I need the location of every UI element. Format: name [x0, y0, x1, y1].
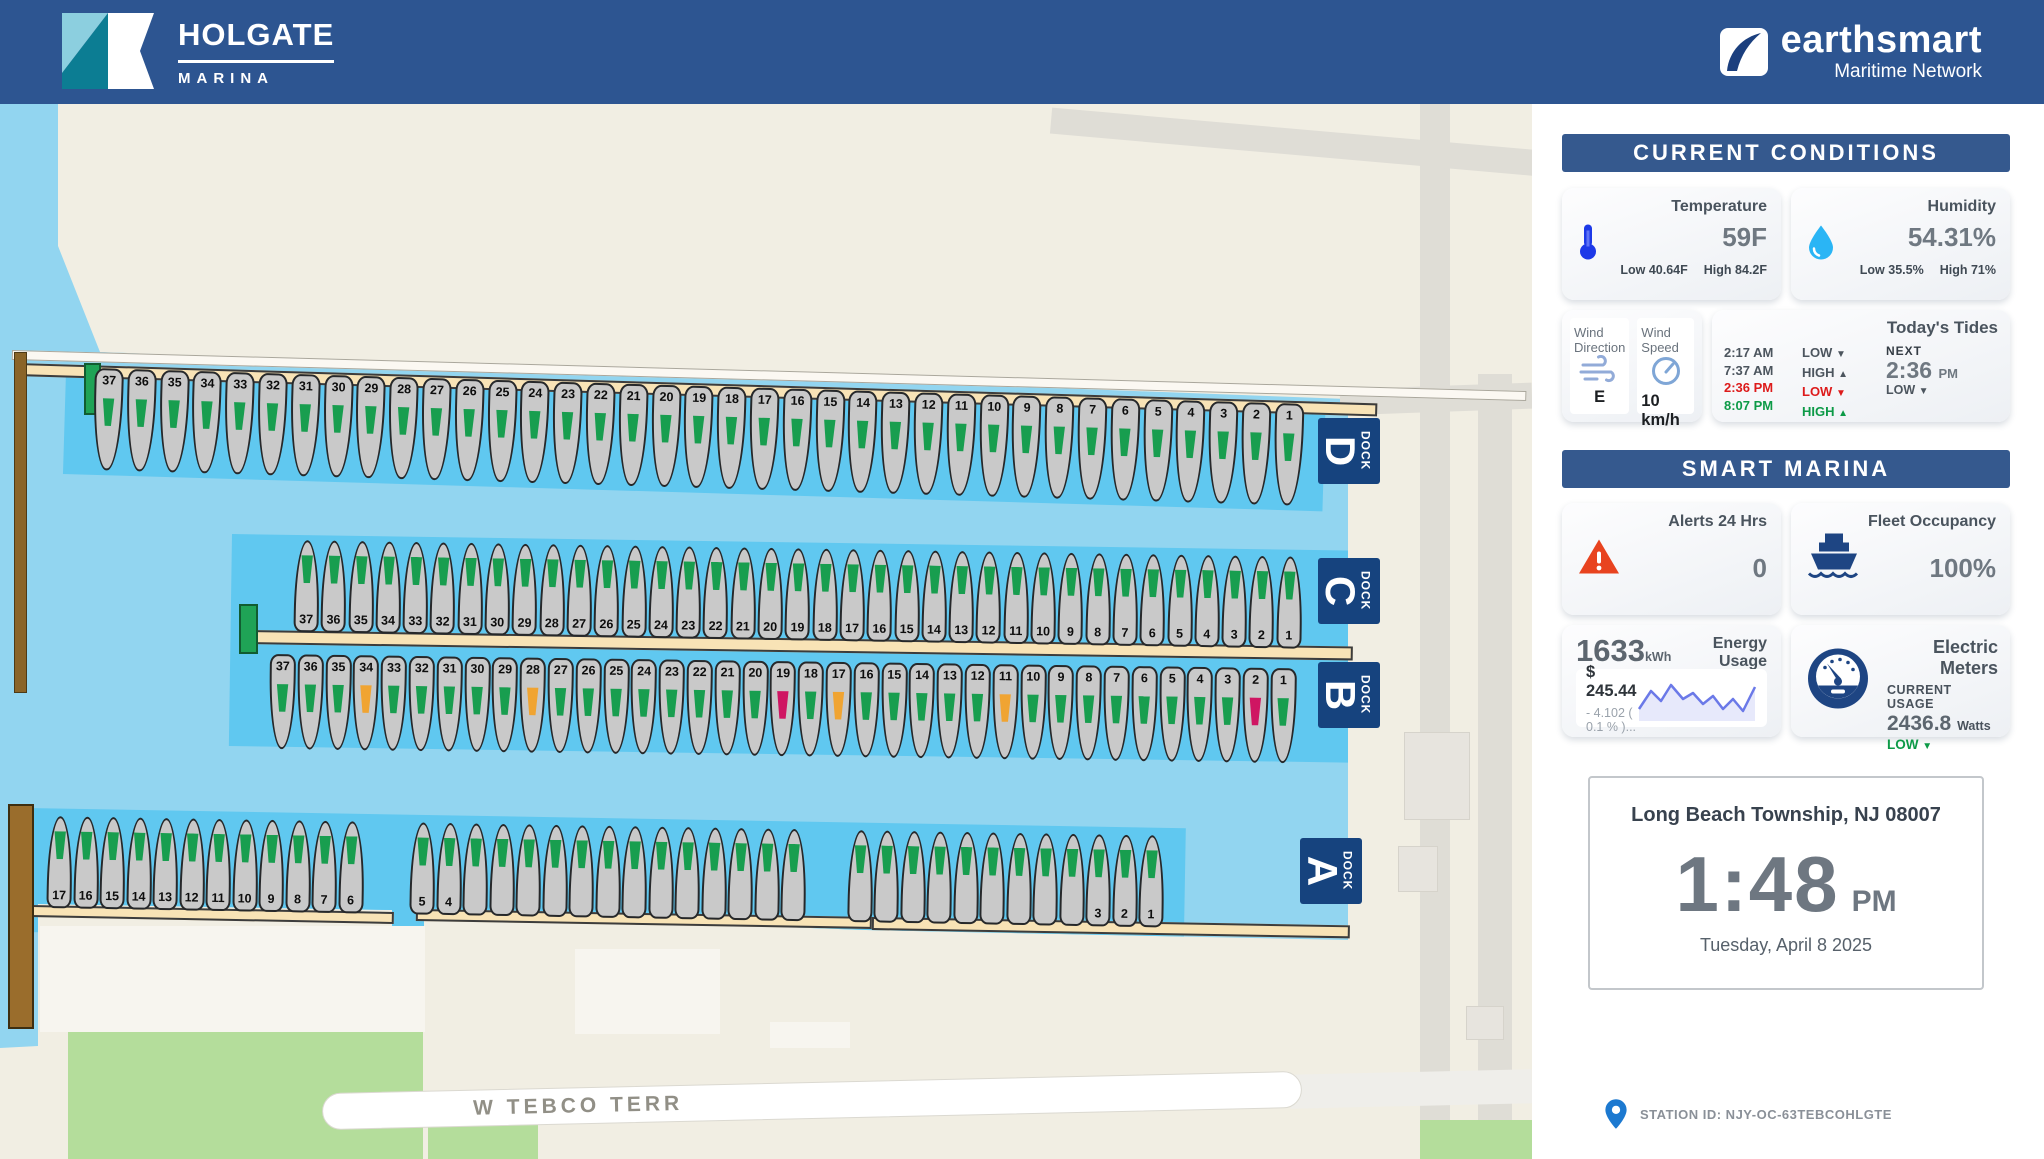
boat-slip-a[interactable]	[595, 826, 622, 918]
boat-slip-c12[interactable]: 12	[976, 551, 1003, 643]
slip-status-marker	[575, 840, 588, 868]
slip-status-marker	[443, 838, 456, 866]
boat-slip-b21[interactable]: 21	[713, 660, 740, 755]
boat-slip-c31[interactable]: 31	[457, 543, 484, 635]
slip-status-marker	[724, 416, 738, 444]
boat-slip-d27[interactable]: 27	[420, 378, 452, 481]
boat-slip-c7[interactable]: 7	[1112, 554, 1139, 646]
boat-slip-d16[interactable]: 16	[780, 388, 812, 491]
boat-slip-c8[interactable]: 8	[1085, 553, 1112, 645]
slip-number: 10	[987, 400, 1001, 413]
slip-status-marker	[331, 405, 345, 433]
boat-slip-a[interactable]	[1032, 833, 1059, 925]
boat-slip-c17[interactable]: 17	[839, 549, 866, 641]
slip-status-marker	[1201, 570, 1214, 598]
boat-slip-a[interactable]	[1006, 833, 1033, 925]
slip-status-marker	[573, 560, 586, 588]
boat-slip-b17[interactable]: 17	[825, 662, 852, 757]
slip-status-marker	[1085, 427, 1099, 455]
slip-number: 32	[415, 662, 429, 675]
boat-slip-c14[interactable]: 14	[921, 550, 948, 642]
slip-number: 36	[135, 375, 149, 388]
energy-value: 1633kWh	[1576, 635, 1671, 666]
slip-number: 29	[517, 616, 531, 629]
slip-status-marker	[167, 400, 181, 428]
street-extension	[1290, 1069, 1532, 1108]
boat-slip-c22[interactable]: 22	[703, 547, 730, 639]
slip-number: 12	[971, 670, 985, 683]
boat-slip-a12[interactable]: 12	[179, 818, 206, 910]
boat-slip-a9[interactable]: 9	[258, 820, 285, 912]
clock-card: Long Beach Township, NJ 08007 1:48PM Tue…	[1588, 776, 1984, 990]
boat-slip-a7[interactable]: 7	[311, 821, 338, 913]
boat-slip-a[interactable]	[568, 825, 595, 917]
meters-trend: LOW ▼	[1887, 737, 1998, 752]
boat-slip-d8[interactable]: 8	[1043, 396, 1075, 499]
boat-slip-d17[interactable]: 17	[748, 387, 780, 490]
boat-slip-d9[interactable]: 9	[1010, 395, 1042, 498]
boat-slip-a13[interactable]: 13	[152, 818, 179, 910]
slip-number: 15	[887, 669, 901, 682]
boat-slip-a[interactable]	[674, 827, 701, 919]
boat-slip-b16[interactable]: 16	[852, 662, 879, 757]
boat-slip-a[interactable]	[780, 829, 807, 921]
slip-status-marker	[1092, 849, 1105, 877]
street-label: W TEBCO TERR	[473, 1091, 684, 1120]
slip-status-marker	[462, 408, 476, 436]
slip-status-marker	[1165, 696, 1178, 724]
boat-slip-c25[interactable]: 25	[621, 545, 648, 637]
boat-slip-c6[interactable]: 6	[1140, 554, 1167, 646]
boat-slip-d33[interactable]: 33	[223, 372, 255, 475]
slip-number: 29	[498, 663, 512, 676]
slip-status-marker	[986, 847, 999, 875]
slip-number: 11	[211, 891, 224, 904]
clock-time: 1:48PM	[1590, 845, 1982, 923]
boat-slip-c30[interactable]: 30	[485, 543, 512, 635]
boat-slip-b9[interactable]: 9	[1047, 665, 1074, 760]
boat-slip-c27[interactable]: 27	[566, 545, 593, 637]
boat-slip-d5[interactable]: 5	[1141, 399, 1173, 502]
slip-status-marker	[200, 401, 214, 429]
boat-slip-c37[interactable]: 37	[293, 540, 320, 632]
boat-slip-c9[interactable]: 9	[1058, 553, 1085, 645]
land-patch	[770, 1022, 850, 1048]
boat-slip-c10[interactable]: 10	[1030, 552, 1057, 644]
boat-slip-c19[interactable]: 19	[785, 548, 812, 640]
boat-slip-d7[interactable]: 7	[1075, 397, 1107, 500]
slip-number: 20	[748, 667, 762, 680]
slip-status-marker	[560, 411, 574, 439]
boat-slip-d21[interactable]: 21	[616, 384, 648, 487]
slip-number: 33	[233, 378, 247, 391]
boat-slip-b32[interactable]: 32	[408, 656, 435, 751]
slip-status-marker	[1066, 849, 1079, 877]
slip-status-marker	[960, 847, 973, 875]
boat-slip-b14[interactable]: 14	[908, 663, 935, 758]
boat-slip-c13[interactable]: 13	[949, 551, 976, 643]
tides-card[interactable]: Today's Tides 2:17 AM 7:37 AM 2:36 PM 8:…	[1712, 310, 2010, 422]
slip-status-marker	[345, 836, 358, 864]
slip-number: 3	[1220, 407, 1227, 420]
boat-slip-d18[interactable]: 18	[715, 386, 747, 489]
boat-slip-c5[interactable]: 5	[1167, 554, 1194, 646]
slip-number: 6	[1122, 404, 1129, 417]
boat-slip-a[interactable]	[648, 826, 675, 918]
slip-status-marker	[1119, 569, 1132, 597]
slip-status-marker	[1013, 848, 1026, 876]
boat-slip-a[interactable]	[754, 828, 781, 920]
boat-slip-b28[interactable]: 28	[519, 657, 546, 752]
boat-slip-d24[interactable]: 24	[518, 381, 550, 484]
boat-slip-c1[interactable]: 1	[1276, 556, 1303, 648]
boat-slip-d36[interactable]: 36	[125, 369, 157, 472]
slip-number: 5	[418, 895, 425, 908]
boat-slip-d10[interactable]: 10	[977, 394, 1009, 497]
slip-number: 28	[397, 383, 411, 396]
boat-slip-c36[interactable]: 36	[321, 540, 348, 632]
boat-slip-b11[interactable]: 11	[991, 664, 1018, 759]
slip-number: 35	[331, 661, 345, 674]
slip-status-marker	[186, 833, 199, 861]
slip-number: 26	[582, 664, 596, 677]
humidity-card[interactable]: Humidity 54.31% Low 35.5% High 71%	[1791, 188, 2010, 300]
boat-slip-d11[interactable]: 11	[944, 393, 976, 496]
slip-number: 4	[445, 895, 452, 908]
alerts-card[interactable]: Alerts 24 Hrs 0	[1562, 503, 1781, 615]
slip-status-marker	[708, 843, 721, 871]
slip-number: 3	[1094, 907, 1101, 920]
boat-slip-c35[interactable]: 35	[348, 541, 375, 633]
thermometer-icon	[1576, 223, 1600, 266]
slip-number: 25	[627, 618, 641, 631]
slip-status-marker	[232, 402, 246, 430]
boat-slip-d23[interactable]: 23	[551, 382, 583, 485]
slip-status-marker	[655, 842, 668, 870]
land-patch	[40, 926, 425, 1032]
slip-number: 30	[331, 381, 345, 394]
boat-slip-d13[interactable]: 13	[879, 391, 911, 494]
boat-slip-a8[interactable]: 8	[285, 820, 312, 912]
boat-slip-d26[interactable]: 26	[453, 379, 485, 482]
slip-status-marker	[804, 691, 817, 719]
boat-slip-d30[interactable]: 30	[321, 375, 353, 478]
fleet-label: Fleet Occupancy	[1805, 513, 1996, 531]
boat-slip-b33[interactable]: 33	[380, 656, 407, 751]
boat-slip-b2[interactable]: 2	[1241, 668, 1268, 763]
wind-speed-value: 10 km/h	[1641, 392, 1690, 430]
boat-slip-d14[interactable]: 14	[846, 390, 878, 493]
boat-slip-b30[interactable]: 30	[463, 657, 490, 752]
slip-number: 36	[304, 660, 318, 673]
dock-cb-endpost	[239, 604, 258, 654]
boat-slip-a17[interactable]: 17	[46, 816, 73, 908]
boat-slip-b25[interactable]: 25	[602, 659, 629, 754]
marina-tagline: MARINA	[178, 70, 334, 87]
slip-number: 12	[981, 624, 995, 637]
slip-status-marker	[276, 684, 289, 712]
dock-d-label: D DOCK	[1318, 418, 1380, 484]
boat-slip-c26[interactable]: 26	[594, 545, 621, 637]
slip-status-marker	[764, 563, 777, 591]
boat-slip-c24[interactable]: 24	[648, 546, 675, 638]
slip-status-marker	[1119, 850, 1132, 878]
boat-slip-c29[interactable]: 29	[512, 544, 539, 636]
slip-status-marker	[832, 691, 845, 719]
boat-slip-b5[interactable]: 5	[1158, 666, 1185, 761]
boat-slip-d22[interactable]: 22	[584, 383, 616, 486]
boat-slip-b31[interactable]: 31	[435, 656, 462, 751]
slip-status-marker	[469, 838, 482, 866]
boat-slip-d34[interactable]: 34	[190, 371, 222, 474]
slip-number: 20	[659, 391, 673, 404]
slip-number: 2	[1252, 674, 1259, 687]
boat-slip-a[interactable]	[542, 825, 569, 917]
slip-status-marker	[526, 687, 539, 715]
slip-status-marker	[527, 410, 541, 438]
boat-slip-d20[interactable]: 20	[649, 385, 681, 488]
current-conditions-header: CURRENT CONDITIONS	[1562, 134, 2010, 172]
clock-date: Tuesday, April 8 2025	[1590, 935, 1982, 956]
boat-slip-d29[interactable]: 29	[354, 376, 386, 479]
slip-number: 37	[276, 660, 290, 673]
boat-slip-c28[interactable]: 28	[539, 544, 566, 636]
boat-slip-b26[interactable]: 26	[574, 658, 601, 753]
boat-slip-c15[interactable]: 15	[894, 550, 921, 642]
boat-slip-c16[interactable]: 16	[867, 550, 894, 642]
boat-slip-d3[interactable]: 3	[1207, 401, 1239, 504]
boat-slip-c2[interactable]: 2	[1249, 556, 1276, 648]
boat-slip-d35[interactable]: 35	[158, 370, 190, 473]
slip-number: 7	[1121, 626, 1128, 639]
slip-status-marker	[1150, 429, 1164, 457]
boat-slip-a1[interactable]: 1	[1138, 835, 1165, 927]
marina-map[interactable]: W TEBCO TERR 373635343332313029282726252…	[0, 104, 1532, 1159]
boat-slip-a6[interactable]: 6	[338, 821, 365, 913]
slip-number: 4	[1203, 628, 1210, 641]
boat-slip-b7[interactable]: 7	[1102, 666, 1129, 761]
boat-slip-d4[interactable]: 4	[1174, 400, 1206, 503]
temperature-high: High 84.2F	[1704, 263, 1767, 277]
wind-card[interactable]: Wind Direction E Wind Speed 10 km/h	[1562, 310, 1702, 422]
boat-slip-b24[interactable]: 24	[630, 659, 657, 754]
boat-slip-a3[interactable]: 3	[1085, 834, 1112, 926]
boat-slip-b3[interactable]: 3	[1214, 667, 1241, 762]
slip-number: 17	[845, 622, 859, 635]
slip-number: 35	[168, 376, 182, 389]
boat-slip-b23[interactable]: 23	[658, 659, 685, 754]
meters-usage-label: CURRENT USAGE	[1887, 683, 1998, 711]
boat-slip-d19[interactable]: 19	[682, 386, 714, 489]
slip-status-marker	[859, 692, 872, 720]
boat-slip-b15[interactable]: 15	[880, 663, 907, 758]
slip-status-marker	[292, 835, 305, 863]
slip-number: 3	[1224, 673, 1231, 686]
boat-slip-d6[interactable]: 6	[1108, 398, 1140, 501]
boat-slip-d12[interactable]: 12	[912, 392, 944, 495]
slip-status-marker	[364, 406, 378, 434]
boat-slip-c33[interactable]: 33	[403, 542, 430, 634]
smart-marina-header: SMART MARINA	[1562, 450, 2010, 488]
fleet-occupancy-card[interactable]: Fleet Occupancy 100%	[1791, 503, 2010, 615]
boat-slip-b8[interactable]: 8	[1075, 665, 1102, 760]
slip-number: 16	[79, 889, 93, 902]
slip-status-marker	[888, 421, 902, 449]
slip-status-marker	[710, 562, 723, 590]
road-diagonal	[1050, 108, 1532, 183]
boat-slip-c21[interactable]: 21	[730, 547, 757, 639]
station-id-row: STATION ID: NJY-OC-63TEBCOHLGTE	[1604, 1098, 1892, 1130]
boat-slip-b12[interactable]: 12	[964, 664, 991, 759]
slip-status-marker	[986, 424, 1000, 452]
boat-slip-b10[interactable]: 10	[1019, 664, 1046, 759]
boat-slip-c34[interactable]: 34	[375, 541, 402, 633]
boat-slip-a10[interactable]: 10	[232, 819, 259, 911]
boat-slip-b37[interactable]: 37	[269, 654, 296, 749]
slip-number: 17	[758, 394, 772, 407]
slip-status-marker	[134, 399, 148, 427]
boat-slip-b36[interactable]: 36	[296, 654, 323, 749]
electric-meters-card[interactable]: Electric Meters CURRENT USAGE 2436.8 Wat…	[1791, 625, 2010, 737]
boat-slip-c20[interactable]: 20	[757, 548, 784, 640]
boat-slip-d2[interactable]: 2	[1239, 402, 1271, 505]
boat-slip-d32[interactable]: 32	[256, 373, 288, 476]
slip-number: 15	[900, 623, 914, 636]
slip-status-marker	[955, 566, 968, 594]
slip-number: 1	[1286, 409, 1293, 422]
boat-slip-a[interactable]	[621, 826, 648, 918]
slip-number: 10	[1036, 625, 1050, 638]
slip-number: 5	[1169, 673, 1176, 686]
slip-status-marker	[496, 839, 509, 867]
boat-slip-a[interactable]	[462, 823, 489, 915]
boat-slip-a[interactable]	[900, 831, 927, 923]
slip-number: 7	[1113, 672, 1120, 685]
boat-slip-b27[interactable]: 27	[547, 658, 574, 753]
slip-status-marker	[792, 563, 805, 591]
slip-number: 8	[1085, 671, 1092, 684]
slip-number: 31	[299, 380, 313, 393]
next-tide-label: NEXT	[1886, 344, 1998, 358]
park-green	[428, 1122, 538, 1159]
slip-number: 31	[463, 615, 477, 628]
boat-slip-c3[interactable]: 3	[1221, 555, 1248, 647]
alerts-label: Alerts 24 Hrs	[1576, 513, 1767, 531]
slip-number: 2	[1253, 408, 1260, 421]
boat-slip-c11[interactable]: 11	[1003, 552, 1030, 644]
slip-number: 26	[463, 385, 477, 398]
boat-slip-a2[interactable]: 2	[1112, 835, 1139, 927]
slip-number: 17	[832, 668, 846, 681]
marina-dashboard: HOLGATE MARINA earthsmart Maritime Netwo…	[0, 0, 2044, 1159]
boat-slip-a[interactable]	[701, 827, 728, 919]
boat-slip-d31[interactable]: 31	[289, 374, 321, 477]
boat-slip-a[interactable]	[1059, 834, 1086, 926]
boat-slip-a5[interactable]: 5	[409, 822, 436, 914]
boat-slip-c4[interactable]: 4	[1194, 555, 1221, 647]
slip-status-marker	[331, 684, 344, 712]
meters-label: Electric Meters	[1887, 637, 1998, 679]
energy-usage-card[interactable]: 1633kWh Energy Usage $ 245.44 - 4.102 ( …	[1562, 625, 1781, 737]
road-vertical-2	[1478, 374, 1512, 1159]
boat-slip-a4[interactable]: 4	[436, 823, 463, 915]
boat-slip-b18[interactable]: 18	[797, 661, 824, 756]
slip-number: 15	[823, 396, 837, 409]
boat-slip-b20[interactable]: 20	[741, 661, 768, 756]
temperature-label: Temperature	[1576, 198, 1767, 216]
boat-slip-a11[interactable]: 11	[205, 819, 232, 911]
boat-slip-a[interactable]	[847, 830, 874, 922]
slip-status-marker	[901, 565, 914, 593]
slip-number: 23	[561, 388, 575, 401]
electric-meter-icon	[1805, 646, 1871, 717]
boat-slip-b13[interactable]: 13	[936, 663, 963, 758]
slip-status-marker	[915, 693, 928, 721]
slip-number: 22	[709, 619, 723, 632]
wind-direction-value: E	[1594, 388, 1605, 407]
boat-slip-b1[interactable]: 1	[1269, 668, 1296, 763]
boat-slip-b4[interactable]: 4	[1186, 667, 1213, 762]
boat-slip-c32[interactable]: 32	[430, 542, 457, 634]
dock-b-letter: B	[1320, 680, 1362, 710]
boat-slip-a[interactable]	[873, 830, 900, 922]
slip-number: 14	[915, 669, 929, 682]
boat-slip-b22[interactable]: 22	[686, 660, 713, 755]
boat-slip-b35[interactable]: 35	[324, 655, 351, 750]
slip-number: 1	[1285, 629, 1292, 642]
slip-number: 30	[490, 616, 504, 629]
boat-slip-d37[interactable]: 37	[92, 368, 124, 471]
boat-slip-d1[interactable]: 1	[1272, 403, 1304, 506]
slip-status-marker	[609, 688, 622, 716]
boat-slip-d15[interactable]: 15	[813, 389, 845, 492]
slip-number: 2	[1258, 628, 1265, 641]
boat-slip-a14[interactable]: 14	[126, 817, 153, 909]
boat-slip-c18[interactable]: 18	[812, 549, 839, 641]
slip-status-marker	[415, 686, 428, 714]
boat-slip-a[interactable]	[489, 824, 516, 916]
boat-slip-a16[interactable]: 16	[73, 816, 100, 908]
boat-slip-a[interactable]	[926, 831, 953, 923]
boat-slip-b19[interactable]: 19	[769, 661, 796, 756]
slip-status-marker	[387, 685, 400, 713]
wind-direction-label: Wind Direction	[1574, 325, 1625, 355]
slip-number: 37	[299, 613, 313, 626]
boat-slip-a[interactable]	[979, 832, 1006, 924]
boat-slip-d28[interactable]: 28	[387, 377, 419, 480]
slip-number: 37	[102, 374, 116, 387]
slip-number: 7	[1089, 404, 1096, 417]
slip-status-marker	[328, 556, 341, 584]
boat-slip-a[interactable]	[727, 828, 754, 920]
boat-slip-a15[interactable]: 15	[99, 817, 126, 909]
slip-status-marker	[101, 398, 115, 426]
boat-slip-c23[interactable]: 23	[676, 546, 703, 638]
boat-slip-a[interactable]	[953, 832, 980, 924]
boat-slip-b29[interactable]: 29	[491, 657, 518, 752]
dock-c-label: C DOCK	[1318, 558, 1380, 624]
boat-slip-d25[interactable]: 25	[485, 380, 517, 483]
slip-status-marker	[106, 832, 119, 860]
meters-usage-value: 2436.8 Watts	[1887, 712, 1998, 736]
station-id-label: STATION ID: NJY-OC-63TEBCOHLGTE	[1640, 1107, 1892, 1122]
temperature-card[interactable]: Temperature 59F Low 40.64F High 84.2F	[1562, 188, 1781, 300]
boat-slip-b34[interactable]: 34	[352, 655, 379, 750]
boat-slip-a[interactable]	[515, 824, 542, 916]
boat-slip-b6[interactable]: 6	[1130, 666, 1157, 761]
slip-status-marker	[628, 561, 641, 589]
slip-status-marker	[396, 406, 410, 434]
